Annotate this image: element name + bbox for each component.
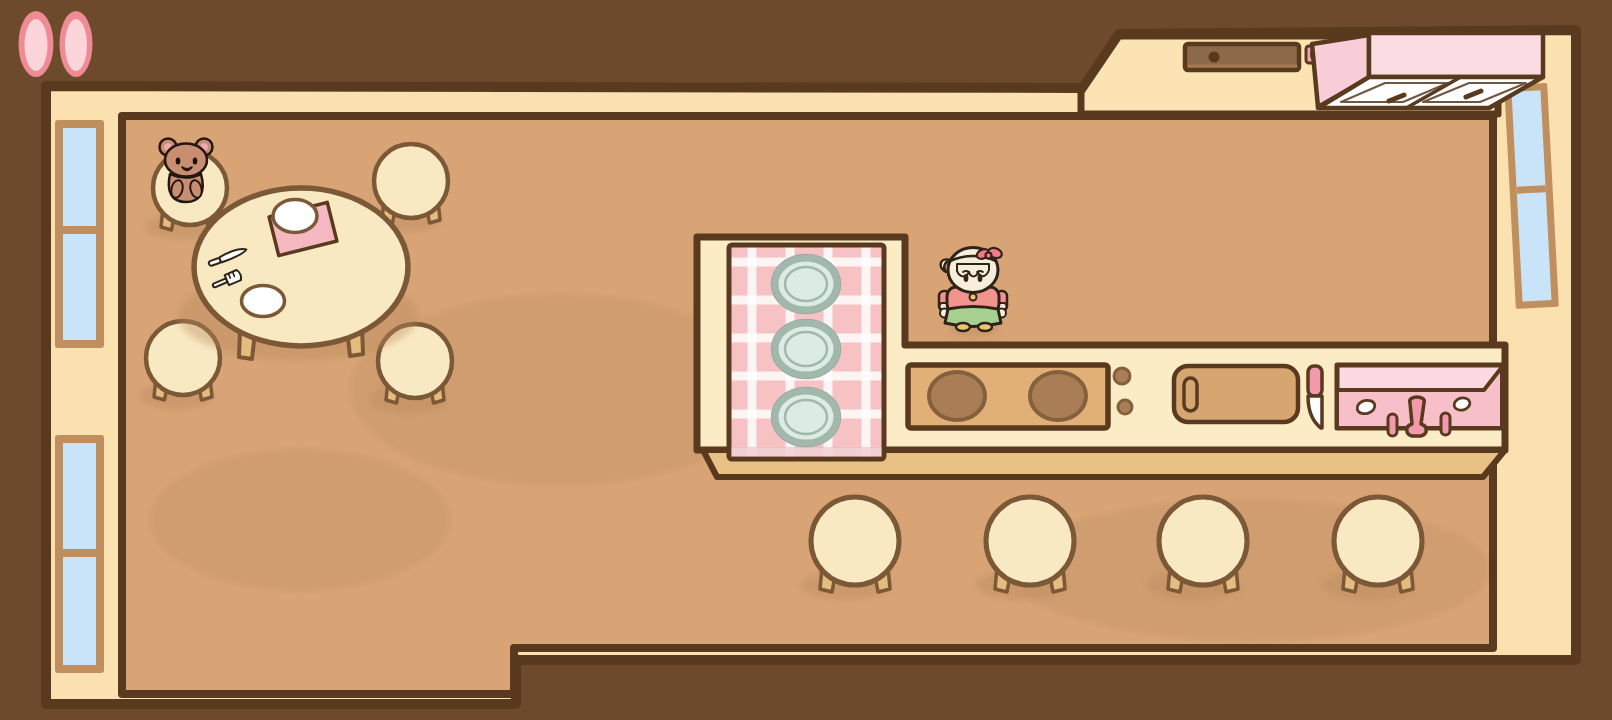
bear-head	[165, 144, 207, 177]
cabinet-front-panel	[1369, 33, 1543, 77]
mat-plate-2[interactable]	[772, 320, 840, 378]
mat-plate-1[interactable]	[772, 255, 840, 313]
sink-handle-right[interactable]	[1441, 413, 1450, 435]
character-pendant	[970, 294, 977, 301]
mat-plate-3[interactable]	[772, 388, 840, 446]
drain-hole	[1209, 52, 1220, 63]
knife-handle	[1308, 366, 1322, 396]
table-plate-top[interactable]	[273, 200, 317, 233]
stove-knob[interactable]	[1118, 400, 1132, 414]
pill-button-right[interactable]	[60, 11, 93, 77]
back-sink-basin[interactable]	[1185, 44, 1299, 70]
left-window-bottom	[55, 435, 104, 673]
pink-sink[interactable]	[1337, 365, 1502, 436]
sink-handle-left[interactable]	[1388, 414, 1397, 436]
character-skirt	[945, 307, 1001, 327]
cutting-board[interactable]	[1174, 366, 1298, 422]
sink-faucet[interactable]	[1407, 397, 1427, 436]
mat-fold	[731, 447, 882, 457]
player-character[interactable]	[939, 246, 1007, 336]
wall-cabinet[interactable]	[1312, 33, 1543, 108]
stove-knob[interactable]	[1114, 368, 1130, 384]
burner-left[interactable]	[929, 372, 985, 420]
table-plate-bottom[interactable]	[242, 286, 285, 317]
left-window-top	[55, 120, 104, 348]
stove[interactable]	[908, 365, 1108, 428]
scene-canvas	[0, 0, 1612, 720]
character-bangs	[957, 264, 989, 277]
character-shoe	[978, 323, 992, 331]
game-viewport	[0, 0, 1612, 720]
pill-button-left[interactable]	[19, 11, 54, 77]
burner-right[interactable]	[1030, 372, 1086, 420]
character-shoe	[956, 323, 970, 331]
